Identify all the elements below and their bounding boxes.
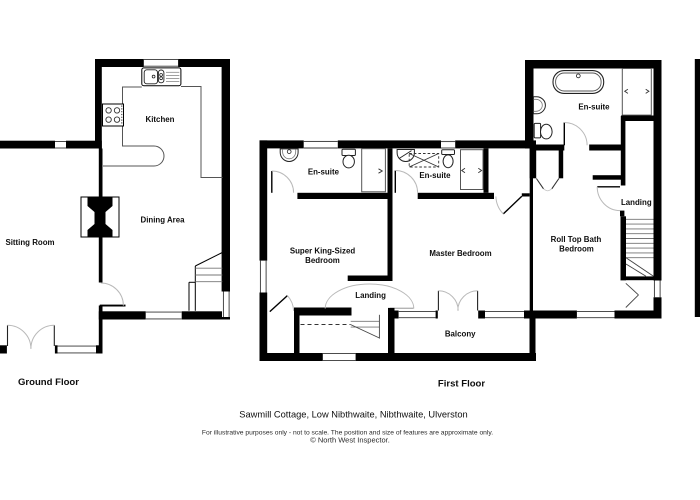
svg-text:© North West Inspector.: © North West Inspector. xyxy=(310,436,390,445)
svg-text:Roll Top Bath: Roll Top Bath xyxy=(551,235,602,244)
svg-text:En-suite: En-suite xyxy=(578,103,610,112)
svg-text:Landing: Landing xyxy=(621,198,652,207)
svg-text:Bedroom: Bedroom xyxy=(559,245,594,254)
svg-text:Sitting Room: Sitting Room xyxy=(5,238,54,247)
svg-text:Ground Floor: Ground Floor xyxy=(18,377,79,388)
svg-text:Landing: Landing xyxy=(355,291,386,300)
svg-text:En-suite: En-suite xyxy=(308,168,340,177)
svg-text:Super King-Sized: Super King-Sized xyxy=(290,247,356,256)
svg-text:Sawmill Cottage, Low Nibthwait: Sawmill Cottage, Low Nibthwaite, Nibthwa… xyxy=(239,410,467,420)
svg-text:Master Bedroom: Master Bedroom xyxy=(429,249,491,258)
svg-text:Kitchen: Kitchen xyxy=(146,115,175,124)
svg-text:Bedroom: Bedroom xyxy=(305,256,340,265)
svg-text:First Floor: First Floor xyxy=(438,379,485,390)
svg-text:Dining Area: Dining Area xyxy=(141,215,186,224)
svg-text:En-suite: En-suite xyxy=(419,171,451,180)
svg-text:Balcony: Balcony xyxy=(445,330,476,339)
